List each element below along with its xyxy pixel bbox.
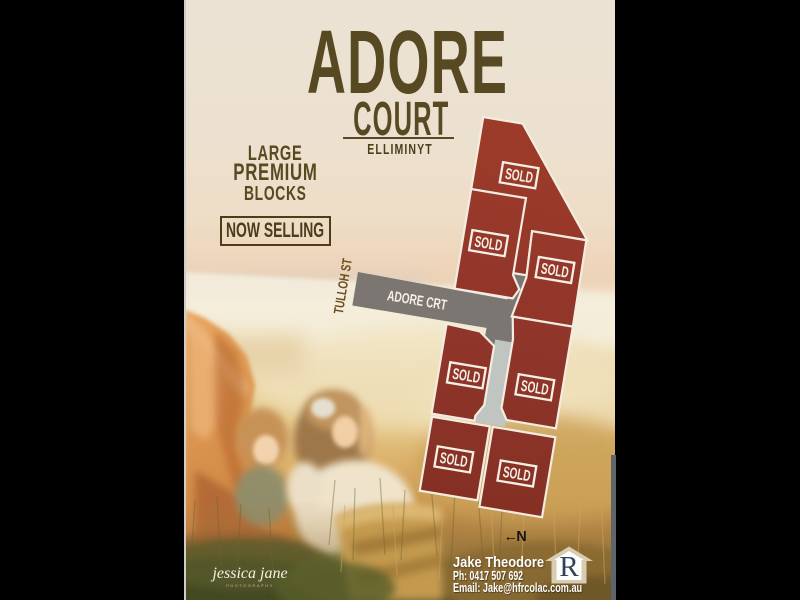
svg-text:R: R [559,551,579,583]
svg-text:TULLOH ST: TULLOH ST [330,257,355,315]
